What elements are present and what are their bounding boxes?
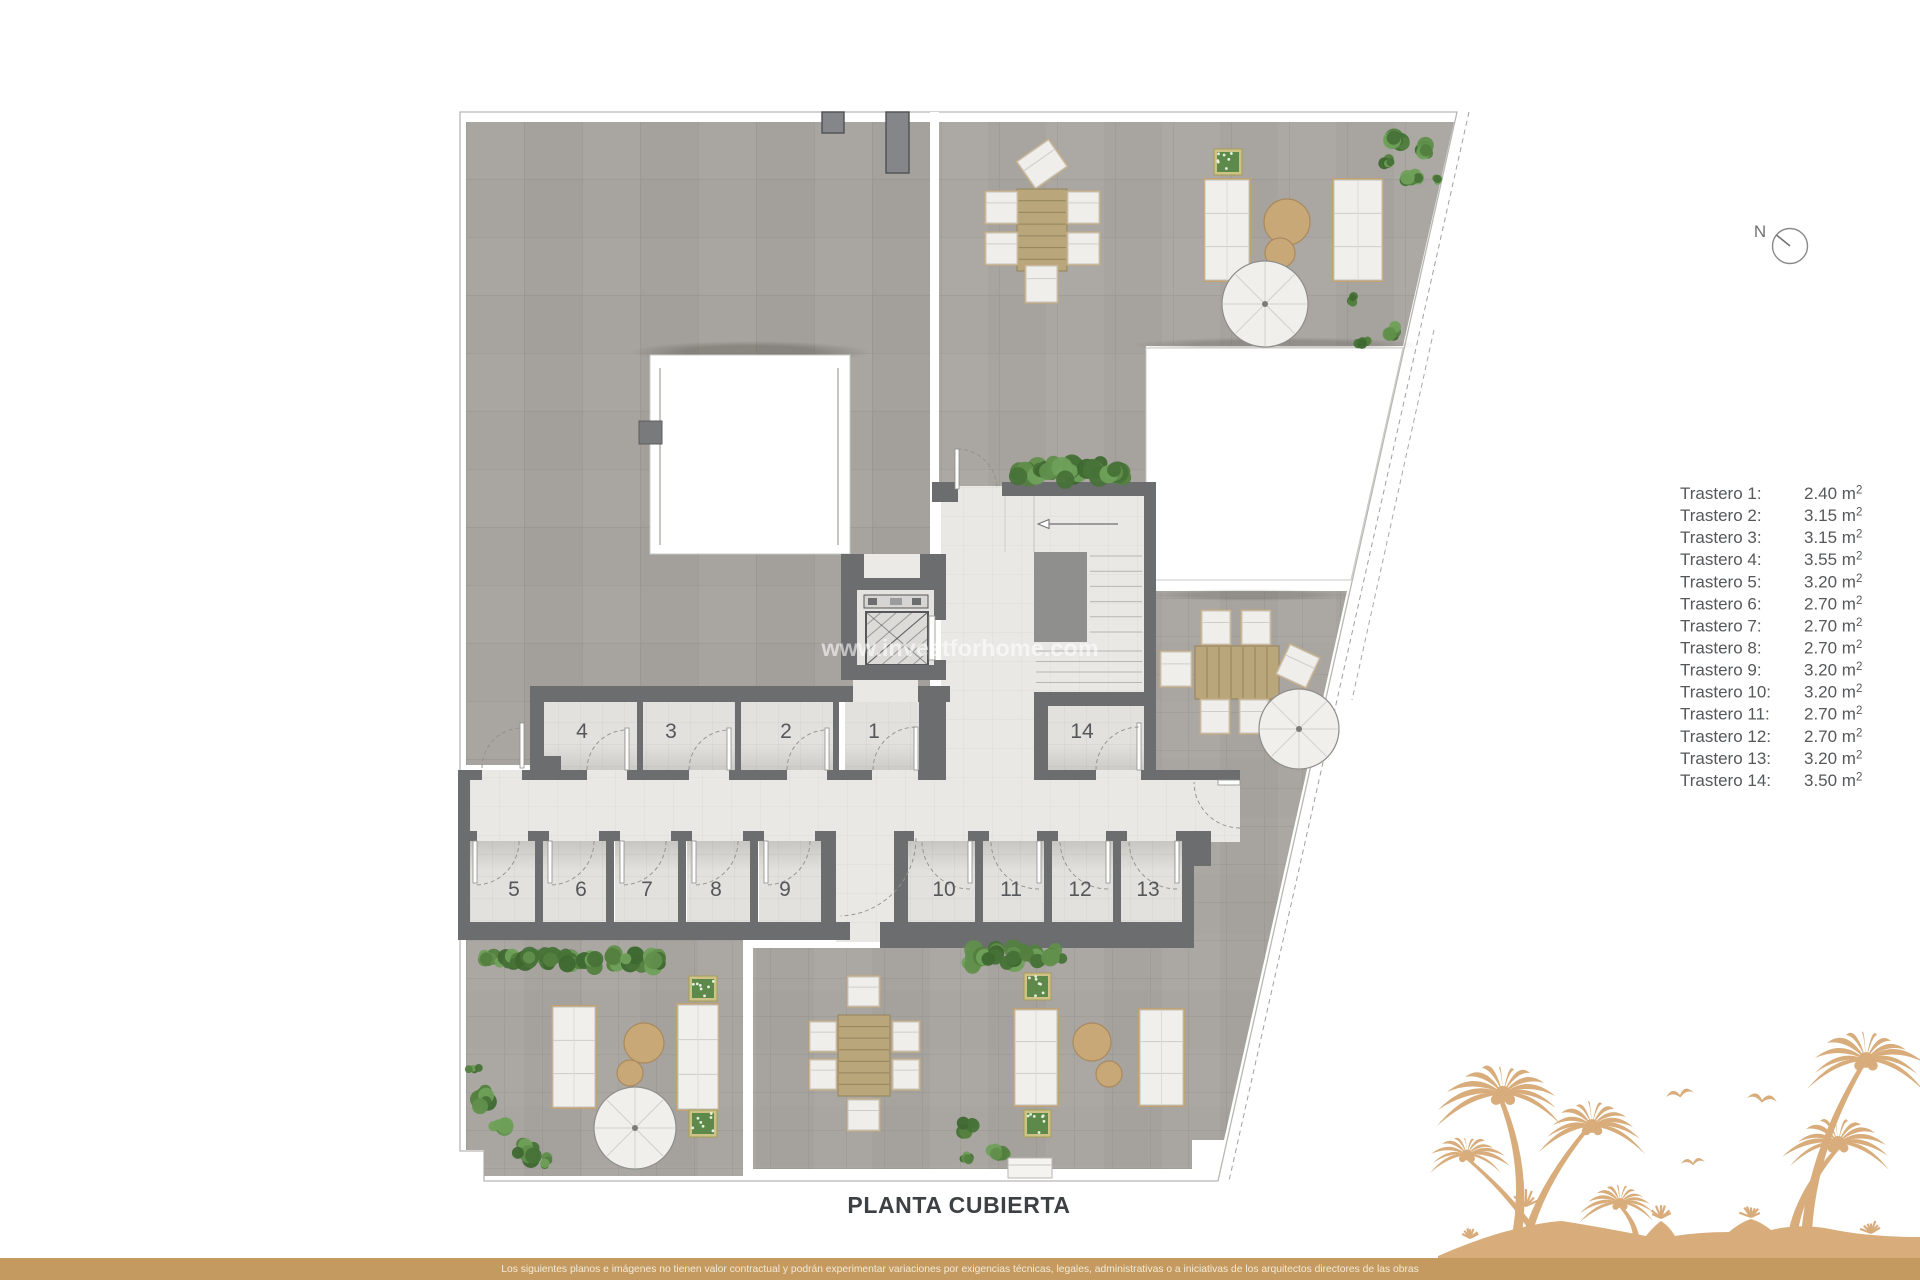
svg-text:PLANTA CUBIERTA: PLANTA CUBIERTA xyxy=(847,1192,1070,1218)
svg-text:1: 1 xyxy=(868,720,880,743)
svg-text:14: 14 xyxy=(1070,720,1094,743)
svg-text:Trastero 7:: Trastero 7: xyxy=(1680,616,1762,635)
svg-text:3.15 m2: 3.15 m2 xyxy=(1804,506,1862,525)
svg-text:Trastero 3:: Trastero 3: xyxy=(1680,528,1762,547)
svg-text:9: 9 xyxy=(779,878,791,901)
svg-text:3: 3 xyxy=(665,720,677,743)
svg-text:4: 4 xyxy=(576,720,588,743)
svg-text:Trastero 14:: Trastero 14: xyxy=(1680,771,1771,790)
svg-text:3.20 m2: 3.20 m2 xyxy=(1804,661,1862,680)
svg-text:3.20 m2: 3.20 m2 xyxy=(1804,683,1862,702)
svg-text:3.20 m2: 3.20 m2 xyxy=(1804,749,1862,768)
svg-text:2.70 m2: 2.70 m2 xyxy=(1804,727,1862,746)
svg-text:3.55 m2: 3.55 m2 xyxy=(1804,550,1862,569)
svg-text:Trastero 6:: Trastero 6: xyxy=(1680,594,1762,613)
svg-text:6: 6 xyxy=(575,878,587,901)
svg-text:Trastero 4:: Trastero 4: xyxy=(1680,550,1762,569)
svg-text:8: 8 xyxy=(710,878,722,901)
svg-text:www.investforhome.com: www.investforhome.com xyxy=(820,635,1098,661)
svg-text:5: 5 xyxy=(508,878,520,901)
svg-text:N: N xyxy=(1754,222,1766,241)
svg-text:Trastero 9:: Trastero 9: xyxy=(1680,661,1762,680)
svg-text:2.70 m2: 2.70 m2 xyxy=(1804,705,1862,724)
svg-text:2.70 m2: 2.70 m2 xyxy=(1804,638,1862,657)
svg-text:13: 13 xyxy=(1136,878,1159,901)
svg-text:Trastero 8:: Trastero 8: xyxy=(1680,638,1762,657)
svg-text:Trastero 11:: Trastero 11: xyxy=(1680,705,1770,724)
svg-text:Trastero 1:: Trastero 1: xyxy=(1680,484,1762,503)
svg-text:2: 2 xyxy=(780,720,792,743)
svg-text:2.70 m2: 2.70 m2 xyxy=(1804,616,1862,635)
svg-text:2.40 m2: 2.40 m2 xyxy=(1804,484,1862,503)
svg-text:Trastero 13:: Trastero 13: xyxy=(1680,749,1771,768)
svg-text:Trastero 2:: Trastero 2: xyxy=(1680,506,1762,525)
svg-text:Los siguientes planos e imágen: Los siguientes planos e imágenes no tien… xyxy=(501,1264,1419,1275)
svg-text:2.70 m2: 2.70 m2 xyxy=(1804,594,1862,613)
svg-text:3.50 m2: 3.50 m2 xyxy=(1804,771,1862,790)
svg-text:12: 12 xyxy=(1068,878,1091,901)
svg-text:7: 7 xyxy=(641,878,653,901)
svg-text:Trastero 12:: Trastero 12: xyxy=(1680,727,1771,746)
svg-text:3.15 m2: 3.15 m2 xyxy=(1804,528,1862,547)
svg-text:Trastero 5:: Trastero 5: xyxy=(1680,572,1762,591)
svg-text:3.20 m2: 3.20 m2 xyxy=(1804,572,1862,591)
svg-text:10: 10 xyxy=(932,878,955,901)
svg-text:Trastero 10:: Trastero 10: xyxy=(1680,683,1771,702)
svg-text:11: 11 xyxy=(1000,878,1022,901)
